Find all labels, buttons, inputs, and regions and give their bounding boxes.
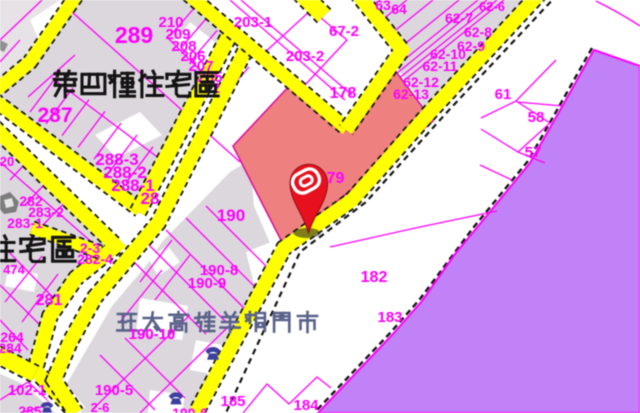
svg-text:190-6: 190-6 [172, 405, 208, 413]
svg-text:62-6: 62-6 [479, 0, 505, 14]
svg-text:102-1: 102-1 [8, 382, 46, 399]
svg-text:287: 287 [37, 104, 72, 127]
svg-text:190-9: 190-9 [188, 275, 226, 292]
svg-text:20: 20 [0, 154, 14, 169]
svg-text:474: 474 [3, 262, 25, 277]
svg-text:289: 289 [115, 22, 153, 48]
svg-text:182: 182 [361, 269, 388, 286]
svg-text:285: 285 [18, 403, 42, 413]
svg-text:283-1: 283-1 [7, 215, 43, 231]
svg-text:282-4: 282-4 [77, 251, 113, 267]
svg-text:61: 61 [495, 86, 512, 103]
svg-text:64: 64 [391, 1, 407, 17]
svg-text:185: 185 [220, 393, 245, 410]
svg-text:62-11: 62-11 [422, 58, 457, 74]
svg-text:2-6: 2-6 [91, 400, 110, 413]
svg-text:190: 190 [217, 206, 245, 225]
svg-text:62-13: 62-13 [393, 86, 429, 102]
svg-text:58: 58 [528, 109, 545, 126]
svg-text:184: 184 [293, 397, 319, 413]
svg-text:284: 284 [0, 340, 22, 356]
svg-text:281: 281 [36, 292, 63, 309]
svg-text:190-5: 190-5 [95, 382, 133, 399]
svg-text:28: 28 [141, 189, 160, 208]
svg-text:67-2: 67-2 [329, 23, 359, 40]
svg-text:183: 183 [377, 309, 402, 326]
svg-text:190-10: 190-10 [129, 326, 176, 343]
svg-text:63: 63 [375, 0, 391, 13]
svg-text:178: 178 [330, 85, 357, 102]
svg-text:203-1: 203-1 [234, 14, 272, 31]
svg-text:57: 57 [525, 144, 542, 161]
svg-text:203-2: 203-2 [286, 48, 324, 65]
